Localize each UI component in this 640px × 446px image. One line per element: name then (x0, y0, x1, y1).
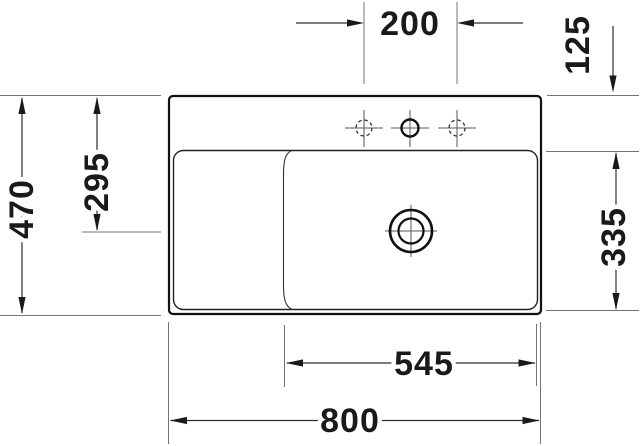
dim-label-rear-offset: 125 (559, 15, 597, 75)
arrowhead (523, 417, 540, 424)
dim-label-bowl-depth: 335 (595, 207, 633, 267)
dim-bowl-depth: 335 (595, 152, 633, 310)
arrowhead (93, 214, 100, 231)
dim-label-tap-spacing: 200 (380, 5, 440, 43)
basin-outline (169, 96, 541, 314)
arrowhead (347, 19, 364, 26)
basin-outer-edge (169, 96, 541, 314)
arrowhead (286, 359, 303, 366)
arrowhead (170, 417, 187, 424)
dim-width-overall: 800 (170, 402, 540, 440)
dim-label-bowl-width: 545 (394, 345, 454, 383)
dim-label-depth-drain: 295 (78, 152, 116, 212)
dim-label-depth-overall: 470 (3, 179, 41, 239)
dim-depth-overall: 470 (3, 97, 41, 314)
arrowhead (612, 152, 619, 169)
arrowhead (457, 19, 474, 26)
dim-depth-drain: 295 (78, 97, 116, 231)
dim-label-width-overall: 800 (320, 402, 380, 440)
arrowhead (93, 97, 100, 114)
arrowhead (519, 359, 536, 366)
arrowhead (18, 97, 25, 114)
dim-rear-offset: 125 (559, 15, 617, 92)
arrowhead (609, 76, 616, 93)
dim-bowl-width: 545 (286, 345, 536, 383)
dim-tap-spacing: 200 (296, 5, 523, 43)
arrowhead (18, 297, 25, 314)
technical-drawing: 200 125 470 295 335 545 800 (0, 0, 640, 446)
arrowhead (612, 293, 619, 310)
